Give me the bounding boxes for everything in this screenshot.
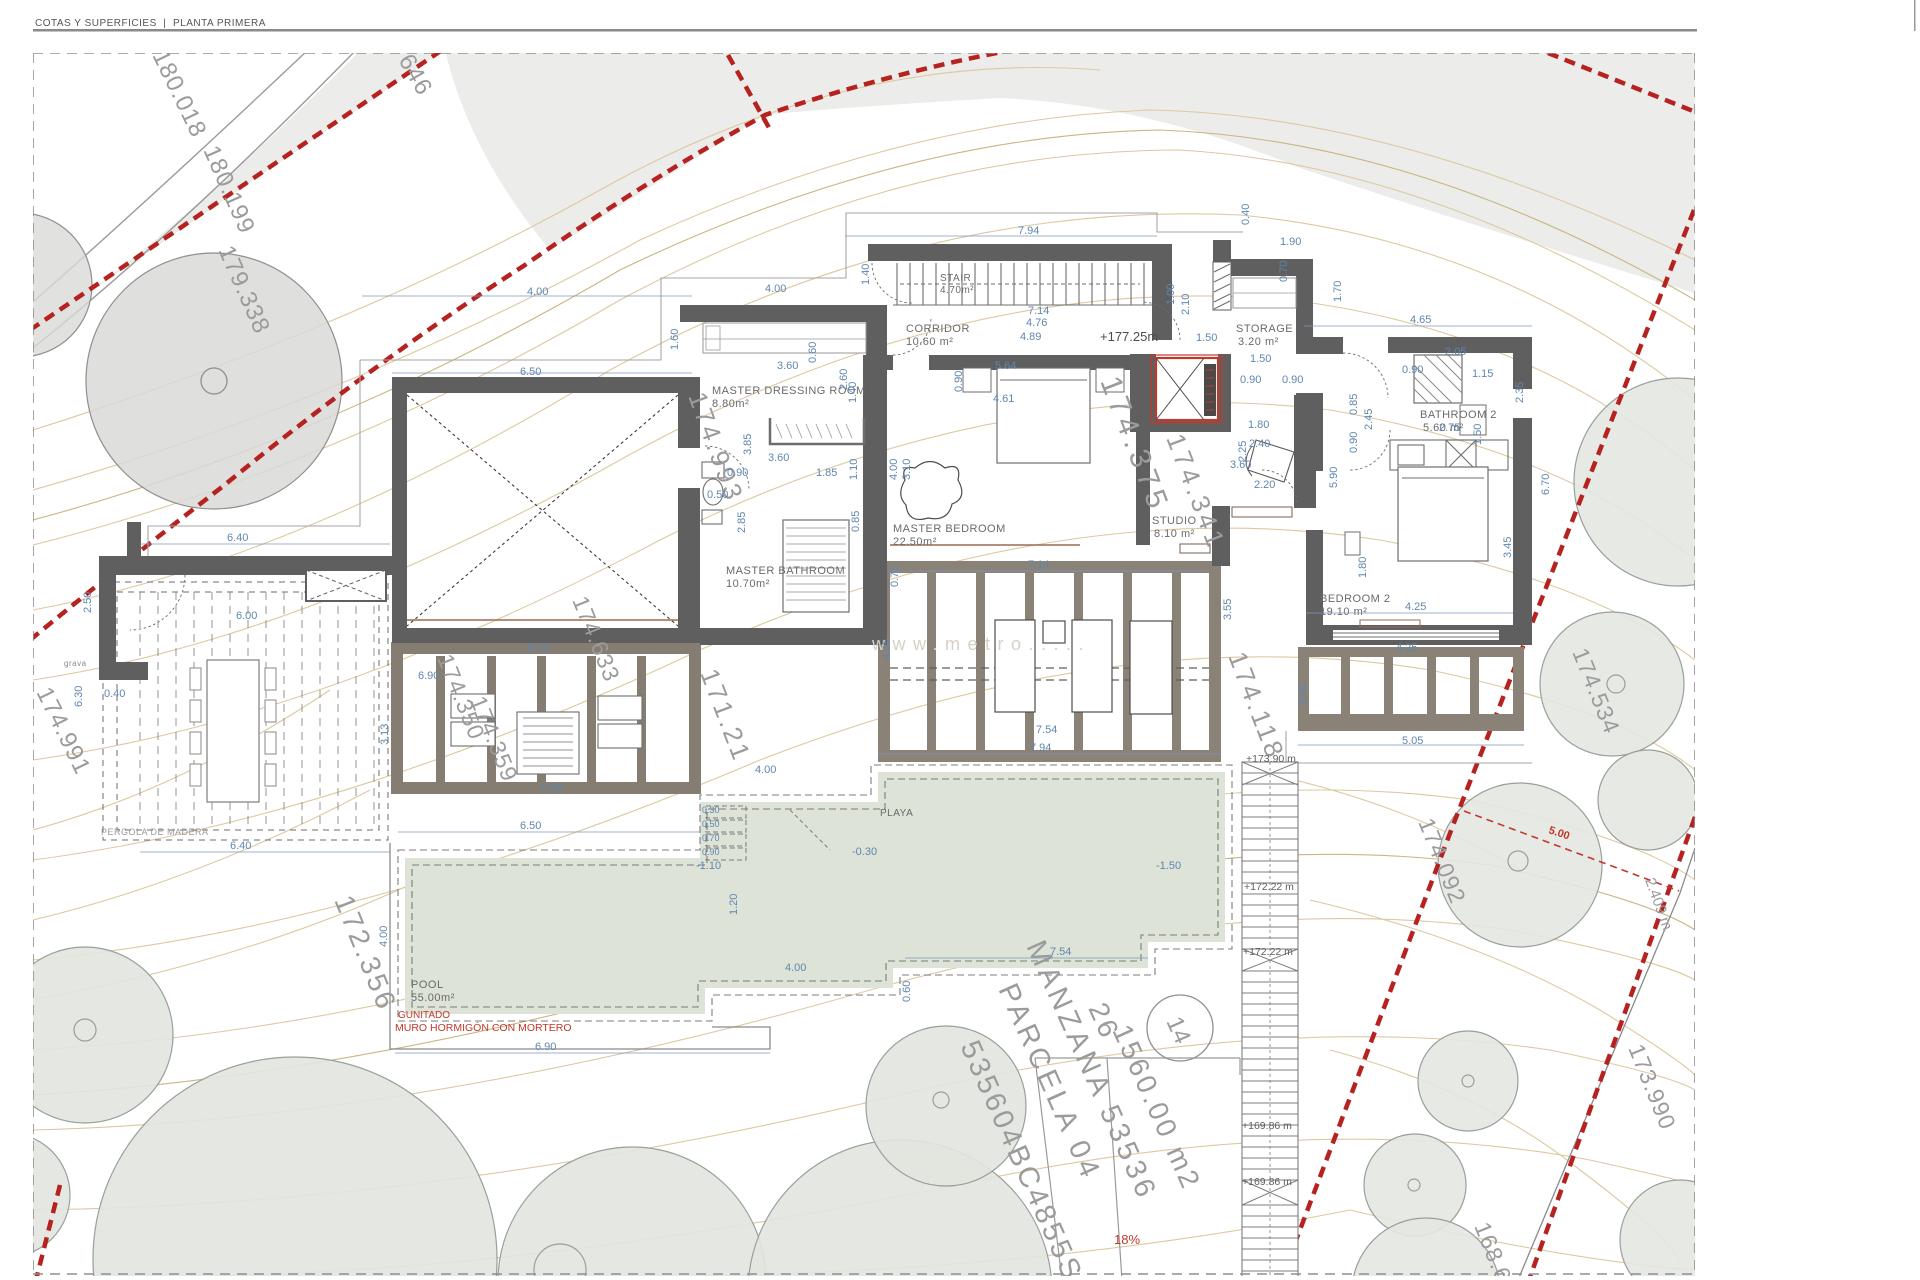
svg-text:5.64: 5.64 (995, 360, 1016, 372)
svg-text:6.40: 6.40 (227, 532, 248, 544)
svg-text:-0.30: -0.30 (852, 846, 877, 858)
svg-text:6.50: 6.50 (520, 820, 541, 832)
svg-text:0.90: 0.90 (1348, 432, 1360, 453)
svg-text:+169.86 m: +169.86 m (1242, 1176, 1292, 1188)
svg-text:1.20: 1.20 (728, 894, 740, 915)
svg-text:+173.90 m: +173.90 m (1246, 753, 1296, 765)
svg-text:www.metro.....: www.metro..... (871, 634, 1091, 654)
svg-text:4.70m²: 4.70m² (940, 285, 974, 296)
svg-text:COTAS Y SUPERFICIES | PLANTA: COTAS Y SUPERFICIES | PLANTA PRIMERA (35, 18, 266, 29)
svg-text:6.40: 6.40 (230, 840, 251, 852)
svg-text:0.70: 0.70 (1278, 261, 1290, 282)
svg-text:4.65: 4.65 (1410, 314, 1431, 326)
svg-text:0.75: 0.75 (889, 566, 901, 587)
svg-text:+177.25m: +177.25m (1100, 329, 1158, 344)
svg-text:7.14: 7.14 (1028, 559, 1049, 571)
svg-text:STAIR: STAIR (940, 273, 971, 284)
svg-text:1.50: 1.50 (1472, 424, 1484, 445)
svg-text:-1.50: -1.50 (1156, 860, 1181, 872)
svg-text:0.90: 0.90 (702, 847, 720, 857)
svg-text:1.15: 1.15 (1472, 368, 1493, 380)
svg-text:2.10: 2.10 (1180, 294, 1192, 315)
svg-text:0.85: 0.85 (1348, 394, 1360, 415)
svg-text:0.40: 0.40 (104, 688, 125, 700)
svg-text:0.90: 0.90 (727, 467, 748, 479)
svg-text:2.05: 2.05 (1445, 346, 1466, 358)
svg-text:MURO HORMIGÓN CON MORTERO: MURO HORMIGÓN CON MORTERO (395, 1021, 572, 1034)
svg-text:2.60: 2.60 (1297, 684, 1309, 705)
svg-text:7.54: 7.54 (1036, 724, 1057, 736)
svg-text:grava: grava (64, 659, 87, 668)
svg-text:6.30: 6.30 (73, 686, 85, 707)
svg-text:4.61: 4.61 (993, 393, 1014, 405)
svg-text:0.90: 0.90 (953, 371, 965, 392)
svg-text:2.85: 2.85 (736, 512, 748, 533)
svg-text:4.25: 4.25 (1405, 601, 1426, 613)
svg-text:2.45: 2.45 (1363, 409, 1375, 430)
svg-text:POOL: POOL (411, 979, 444, 991)
svg-text:4.00: 4.00 (888, 459, 900, 480)
svg-text:2.20: 2.20 (1254, 479, 1275, 491)
svg-text:4.45: 4.45 (881, 639, 893, 660)
svg-text:0.70: 0.70 (702, 833, 720, 843)
svg-text:BEDROOM 2: BEDROOM 2 (1320, 593, 1391, 605)
svg-text:1.80: 1.80 (1357, 557, 1369, 578)
svg-text:1.50: 1.50 (1196, 332, 1217, 344)
svg-text:0.40: 0.40 (1240, 204, 1252, 225)
svg-text:0.30: 0.30 (702, 805, 720, 815)
svg-text:4.00: 4.00 (755, 764, 776, 776)
svg-text:-1.10: -1.10 (696, 860, 721, 872)
svg-text:CORRIDOR: CORRIDOR (906, 323, 970, 335)
svg-text:3.13: 3.13 (379, 724, 391, 745)
svg-text:1.40: 1.40 (860, 264, 872, 285)
svg-text:MASTER BATHROOM: MASTER BATHROOM (726, 565, 845, 577)
svg-text:10.60 m²: 10.60 m² (906, 336, 953, 348)
svg-text:3.60: 3.60 (768, 452, 789, 464)
svg-text:0.85: 0.85 (850, 511, 862, 532)
svg-text:7.94: 7.94 (1030, 742, 1051, 754)
svg-text:4.76: 4.76 (1026, 317, 1047, 329)
svg-text:1.50: 1.50 (1250, 353, 1271, 365)
svg-text:0.60: 0.60 (807, 342, 819, 363)
svg-text:PERGOLA DE MADERA: PERGOLA DE MADERA (101, 827, 209, 837)
svg-text:1.80: 1.80 (1248, 419, 1269, 431)
svg-text:22.50m²: 22.50m² (893, 536, 937, 548)
svg-text:2.50: 2.50 (82, 592, 94, 613)
svg-text:2.35: 2.35 (1514, 382, 1526, 403)
svg-text:GUNITADO: GUNITADO (398, 1010, 450, 1021)
svg-text:6.90: 6.90 (535, 1041, 556, 1053)
svg-text:7.14: 7.14 (1028, 305, 1049, 317)
svg-text:6.00: 6.00 (236, 610, 257, 622)
svg-text:1.85: 1.85 (816, 467, 837, 479)
svg-text:7.54: 7.54 (1050, 946, 1071, 958)
svg-text:8.80m²: 8.80m² (712, 398, 749, 410)
svg-text:STORAGE: STORAGE (1236, 323, 1293, 335)
svg-text:4.89: 4.89 (1020, 331, 1041, 343)
svg-text:8.10 m²: 8.10 m² (1154, 528, 1195, 540)
svg-text:3.55: 3.55 (1222, 599, 1234, 620)
svg-text:3.60: 3.60 (777, 360, 798, 372)
svg-text:18%: 18% (1114, 1232, 1140, 1247)
svg-text:3.10: 3.10 (901, 459, 913, 480)
svg-text:4.00: 4.00 (785, 962, 806, 974)
svg-text:2.40: 2.40 (1249, 438, 1270, 450)
svg-text:5.90: 5.90 (1328, 467, 1340, 488)
svg-text:0.90: 0.90 (1240, 374, 1261, 386)
svg-text:55.00m²: 55.00m² (411, 992, 455, 1004)
svg-text:3.45: 3.45 (1502, 537, 1514, 558)
svg-text:2.25: 2.25 (1237, 441, 1249, 462)
svg-text:1.70: 1.70 (1332, 281, 1344, 302)
svg-text:0.90: 0.90 (1282, 374, 1303, 386)
svg-text:19.10 m²: 19.10 m² (1320, 606, 1367, 618)
svg-text:3.20 m²: 3.20 m² (1238, 336, 1279, 348)
svg-text:0.60: 0.60 (901, 981, 913, 1002)
svg-text:2.75: 2.75 (1439, 422, 1460, 434)
svg-text:6.90: 6.90 (418, 670, 439, 682)
svg-text:4.25: 4.25 (1396, 642, 1417, 654)
svg-text:6.10: 6.10 (528, 642, 549, 654)
svg-text:10.70m²: 10.70m² (726, 578, 770, 590)
svg-text:STUDIO: STUDIO (1152, 515, 1197, 527)
svg-text:1.10: 1.10 (848, 459, 860, 480)
svg-text:PLAYA: PLAYA (880, 808, 913, 819)
svg-text:0.90: 0.90 (1402, 364, 1423, 376)
svg-text:6.70: 6.70 (1540, 474, 1552, 495)
svg-text:0.50: 0.50 (707, 489, 728, 501)
svg-text:MASTER BEDROOM: MASTER BEDROOM (893, 523, 1006, 535)
svg-text:4.00: 4.00 (765, 283, 786, 295)
svg-text:1.00: 1.00 (1165, 284, 1177, 305)
svg-text:6.90: 6.90 (542, 782, 563, 794)
svg-text:6.50: 6.50 (520, 366, 541, 378)
svg-text:1.40: 1.40 (847, 382, 859, 403)
svg-text:+169.86 m: +169.86 m (1242, 1120, 1292, 1132)
svg-text:BATHROOM 2: BATHROOM 2 (1420, 409, 1497, 421)
svg-text:0.50: 0.50 (702, 819, 720, 829)
svg-text:4.00: 4.00 (378, 926, 390, 947)
svg-text:7.94: 7.94 (1018, 225, 1039, 237)
svg-text:3.85: 3.85 (742, 434, 754, 455)
svg-text:+172.22 m: +172.22 m (1243, 946, 1293, 958)
svg-text:+172.22 m: +172.22 m (1244, 881, 1294, 893)
svg-text:1.90: 1.90 (1280, 236, 1301, 248)
svg-text:1.60: 1.60 (669, 329, 681, 350)
